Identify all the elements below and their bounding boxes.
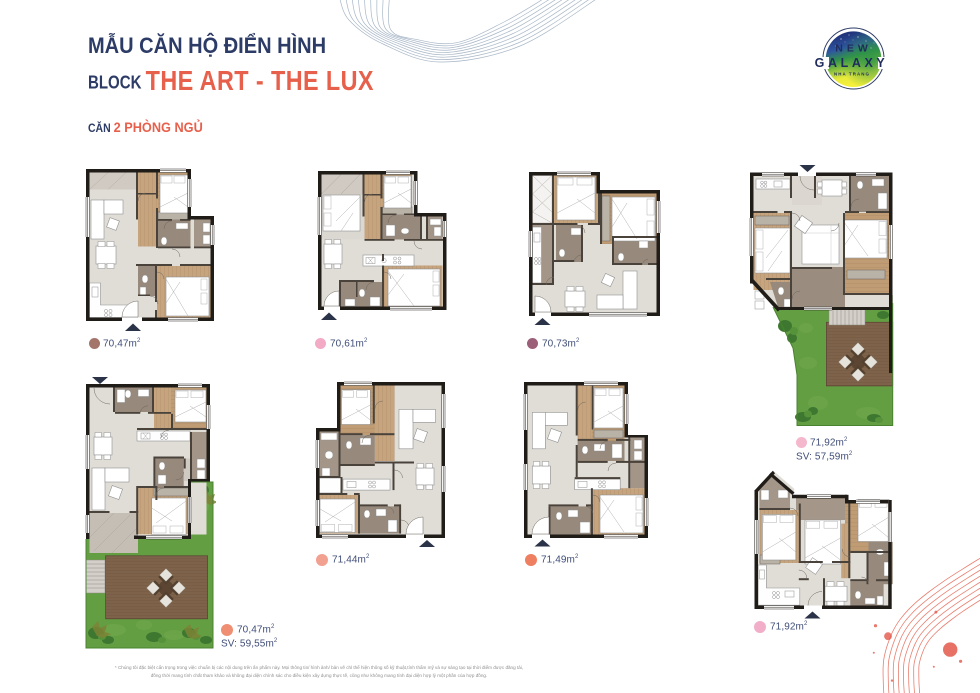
- svg-text:GALAXY: GALAXY: [815, 56, 888, 70]
- svg-text:NEW: NEW: [835, 43, 872, 55]
- svg-text:NHA TRANG: NHA TRANG: [834, 72, 870, 77]
